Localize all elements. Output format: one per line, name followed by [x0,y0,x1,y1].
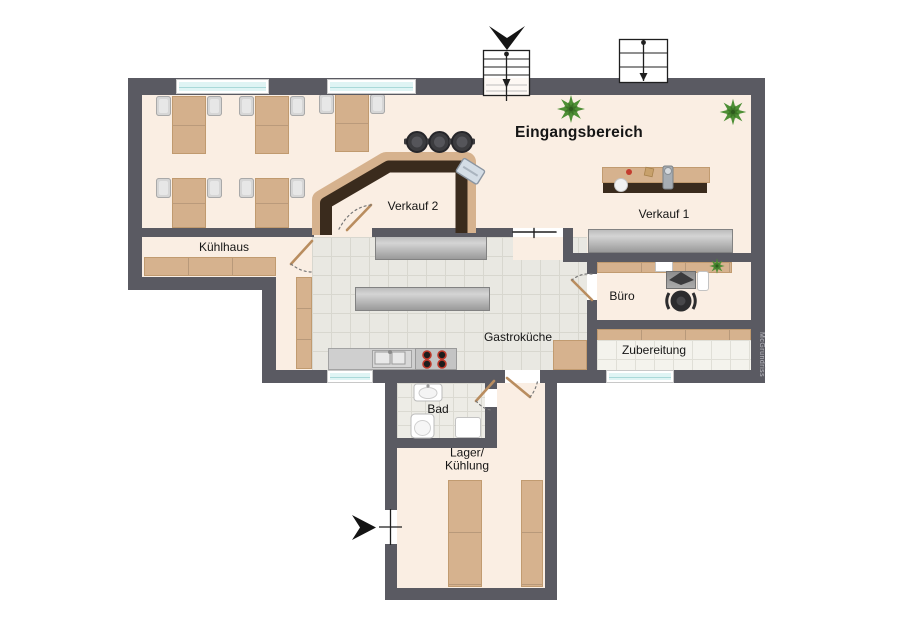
office-chair-icon [667,291,696,312]
plant-icon [720,99,747,126]
room-label-lager-line1: Lager/ [445,447,489,460]
verkauf1-counter-items [615,166,674,192]
plan-overlay [0,0,900,636]
plant-icon [557,95,585,123]
staircase-main [484,51,530,102]
room-label-bad: Bad [427,402,448,416]
plant-icon [709,258,724,273]
door-swing [291,205,592,410]
room-label-verkauf1: Verkauf 1 [639,207,690,221]
entrance-arrow-right-icon [352,515,376,540]
room-label-eingangsbereich: Eingangsbereich [515,124,643,142]
floor-plan: Eingangsbereich Verkauf 2 Verkauf 1 Kühl… [0,0,900,636]
entrance-arrow-down-icon [489,26,525,50]
toilet-icon [411,414,434,438]
room-label-gastrokueche: Gastroküche [484,330,552,344]
kitchen-sink-icon [375,350,405,364]
bathroom-sink-icon [414,384,442,401]
room-label-buero: Büro [609,289,634,303]
room-label-kuehlhaus: Kühlhaus [199,240,249,254]
room-label-verkauf2: Verkauf 2 [388,199,439,213]
watermark: McGrundriss [750,326,765,384]
stove-burners [423,351,446,368]
soup-pots [404,132,475,152]
room-label-zubereitung: Zubereitung [622,343,686,357]
staircase-secondary [620,40,668,83]
room-label-lager-line2: Kühlung [445,460,489,473]
side-entrance-door [379,509,402,545]
monitor-icon [669,272,694,285]
room-label-lager-kuehlung: Lager/ Kühlung [445,447,489,474]
